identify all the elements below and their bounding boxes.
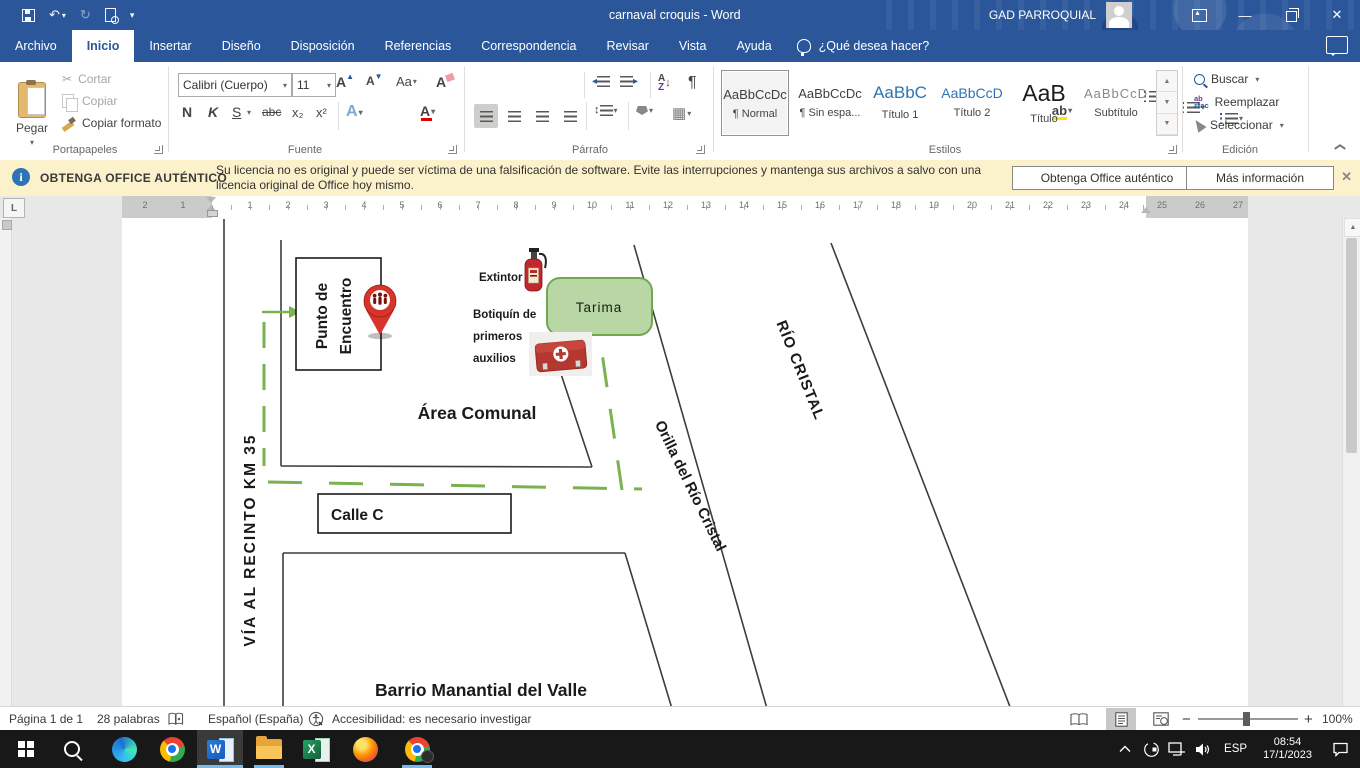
status-bar: Página 1 de 1 28 palabras Español (Españ…: [0, 706, 1360, 731]
style-titulo[interactable]: AaB Título: [1011, 70, 1077, 134]
left-indent-marker[interactable]: [207, 210, 218, 217]
app-badge-icon: [421, 750, 434, 763]
ribbon-display-options-icon[interactable]: [1176, 0, 1222, 30]
rio-cristal-label[interactable]: RÍO CRISTAL: [772, 318, 827, 422]
tab-correspondencia[interactable]: Correspondencia: [466, 30, 591, 62]
excel-icon: X: [303, 737, 330, 762]
cursor-arrow-icon: [1191, 117, 1206, 133]
shading-button[interactable]: ▾: [636, 106, 653, 115]
tab-vista[interactable]: Vista: [664, 30, 722, 62]
zoom-percentage[interactable]: 100%: [1322, 707, 1353, 731]
ruler-number: 6: [437, 200, 442, 210]
cut-button[interactable]: ✂ Cortar: [62, 72, 111, 86]
clock[interactable]: 08:54 17/1/2023: [1255, 736, 1320, 762]
underline-dropdown[interactable]: ▾: [246, 108, 251, 117]
comments-icon[interactable]: [1326, 36, 1348, 54]
tab-diseno[interactable]: Diseño: [207, 30, 276, 62]
close-icon[interactable]: ✕: [1314, 0, 1360, 30]
zoom-slider[interactable]: [1198, 718, 1298, 720]
grow-font-button[interactable]: A▲: [336, 74, 354, 90]
more-info-button[interactable]: Más información: [1186, 166, 1334, 190]
ribbon-home: Pegar ▾ ✂ Cortar Copiar Copiar formato P…: [0, 62, 1360, 161]
zoom-slider-thumb[interactable]: [1243, 712, 1250, 726]
strikethrough-button[interactable]: abc: [262, 105, 281, 119]
styles-scroll-down-icon[interactable]: ▼: [1157, 92, 1177, 113]
word-count[interactable]: 28 palabras: [97, 707, 160, 731]
search-icon: [64, 741, 80, 757]
read-mode-icon[interactable]: [1064, 708, 1094, 730]
web-layout-icon[interactable]: [1146, 708, 1176, 730]
ruler-number: 11: [625, 200, 634, 210]
taskbar-chrome2-button[interactable]: [394, 730, 440, 768]
replace-icon: ab⇄ac: [1194, 95, 1209, 109]
redo-icon[interactable]: ↻: [80, 7, 91, 23]
taskbar-excel-button[interactable]: X: [293, 730, 339, 768]
network-icon[interactable]: [1164, 730, 1190, 768]
account-name: GAD PARROQUIAL: [989, 8, 1096, 22]
taskbar-edge-button[interactable]: [101, 730, 147, 768]
license-banner: i OBTENGA OFFICE AUTÉNTICO Su licencia n…: [0, 160, 1360, 197]
ruler-number: 7: [475, 200, 480, 210]
decrease-indent-button[interactable]: ◂: [592, 76, 610, 87]
replace-button[interactable]: ab⇄ac Reemplazar: [1194, 95, 1279, 109]
zoom-out-button[interactable]: −: [1182, 707, 1191, 731]
sort-button[interactable]: AZ↓: [658, 74, 671, 92]
scroll-up-icon[interactable]: ▲: [1344, 218, 1360, 237]
accessibility-status[interactable]: Accesibilidad: es necesario investigar: [332, 707, 531, 731]
word-window: ↶▾ ↻ ▾ carnaval croquis - Word GAD PARRO…: [0, 0, 1360, 768]
font-family-combobox[interactable]: Calibri (Cuerpo)▾: [178, 73, 292, 97]
banner-message: Su licencia no es original y puede ser v…: [216, 163, 981, 193]
eraser-icon: [445, 73, 455, 82]
font-color-button[interactable]: A ▾: [420, 103, 435, 119]
scrollbar-thumb[interactable]: [1346, 238, 1357, 453]
ruler-number: 9: [551, 200, 556, 210]
tell-me-label: ¿Qué desea hacer?: [819, 39, 930, 53]
calle-c-label[interactable]: Calle C: [331, 507, 384, 524]
first-line-indent-marker[interactable]: [206, 197, 216, 203]
select-button[interactable]: Seleccionar▾: [1194, 118, 1284, 132]
ruler-number: 1: [180, 200, 185, 210]
ruler-number: 3: [323, 200, 328, 210]
align-right-button[interactable]: [530, 104, 554, 128]
line-spacing-button[interactable]: ↕▾: [594, 104, 618, 116]
proofing-icon[interactable]: [168, 707, 184, 731]
ruler-number: 8: [513, 200, 518, 210]
tarima-label[interactable]: Tarima: [576, 300, 623, 315]
tab-inicio[interactable]: Inicio: [72, 30, 135, 62]
account-area[interactable]: GAD PARROQUIAL: [989, 0, 1132, 30]
document-canvas: Punto de Encuentro: [0, 218, 1360, 706]
orilla-road-left-line: [634, 245, 768, 706]
ruler-number: 2: [142, 200, 147, 210]
ruler-number: 27: [1233, 200, 1243, 210]
ruler-number: 24: [1119, 200, 1129, 210]
increase-indent-button[interactable]: ▸: [620, 76, 638, 87]
taskbar-firefox-button[interactable]: [342, 730, 388, 768]
tab-archivo[interactable]: Archivo: [0, 30, 72, 62]
find-button[interactable]: Buscar▾: [1194, 72, 1259, 86]
change-case-button[interactable]: Aa▾: [396, 74, 417, 89]
print-preview-icon[interactable]: [105, 8, 116, 22]
word-icon: W: [207, 737, 234, 762]
ribbon-tabs: Archivo Inicio Insertar Diseño Disposici…: [0, 30, 1360, 62]
ruler: L 21123456789101112131415161718192021222…: [0, 196, 1360, 218]
botiquin-label-line2[interactable]: primeros: [473, 331, 522, 343]
fire-extinguisher-icon[interactable]: [525, 248, 546, 291]
styles-gallery-more-icon[interactable]: ▼: [1157, 114, 1177, 135]
language-status[interactable]: Español (España): [208, 707, 303, 731]
via-recinto-label[interactable]: VÍA AL RECINTO KM 35: [242, 433, 259, 646]
info-icon: i: [12, 168, 30, 186]
ruler-number: 5: [399, 200, 404, 210]
hidden-icons-chevron-icon[interactable]: [1112, 730, 1138, 768]
ruler-number: 17: [853, 200, 863, 210]
font-dialog-launcher-icon[interactable]: [448, 145, 457, 154]
search-icon: [1194, 74, 1205, 85]
ruler-number: 19: [929, 200, 939, 210]
tell-me-box[interactable]: ¿Qué desea hacer?: [787, 30, 940, 62]
format-painter-button[interactable]: Copiar formato: [62, 116, 161, 130]
tab-insertar[interactable]: Insertar: [134, 30, 206, 62]
tab-ayuda[interactable]: Ayuda: [721, 30, 786, 62]
quick-access-toolbar: ↶▾ ↻ ▾: [22, 0, 134, 30]
print-layout-icon[interactable]: [1106, 708, 1136, 730]
styles-gallery-scroll: ▲ ▼ ▼: [1156, 70, 1178, 136]
ruler-number: 26: [1195, 200, 1205, 210]
ruler-number: 20: [967, 200, 977, 210]
lightbulb-icon: [797, 39, 811, 53]
meet-now-icon[interactable]: [1138, 730, 1164, 768]
vertical-ruler: [0, 218, 12, 706]
avatar[interactable]: [1106, 2, 1132, 28]
minimize-icon[interactable]: —: [1222, 0, 1268, 30]
paste-icon: [18, 82, 46, 118]
font-color-swatch: [421, 118, 432, 121]
justify-button[interactable]: [558, 104, 582, 128]
area-comunal-label[interactable]: Área Comunal: [418, 402, 537, 423]
scissors-icon: ✂: [62, 72, 72, 86]
tab-selector[interactable]: L: [3, 198, 25, 218]
taskbar-chrome-button[interactable]: [149, 730, 195, 768]
ruler-number: 21: [1005, 200, 1015, 210]
restore-icon[interactable]: [1268, 0, 1314, 30]
keyboard-language[interactable]: ESP: [1216, 743, 1255, 755]
zoom-in-button[interactable]: +: [1304, 707, 1313, 731]
paragraph-group-label: Párrafo: [535, 144, 645, 156]
styles-group-label: Estilos: [890, 144, 1000, 156]
edge-icon: [112, 737, 137, 762]
action-center-icon[interactable]: [1320, 730, 1360, 768]
ruler-number: 4: [361, 200, 366, 210]
style-titulo-1[interactable]: AaBbC Título 1: [867, 70, 933, 134]
extintor-label[interactable]: Extintor: [479, 272, 523, 284]
customize-qat-icon[interactable]: ▾: [130, 10, 135, 21]
styles-scroll-up-icon[interactable]: ▲: [1157, 71, 1177, 92]
taskbar: W X ESP: [0, 730, 1360, 768]
window-title: carnaval croquis - Word: [609, 0, 741, 30]
ruler-track: 2112345678910111213141516171819202122232…: [122, 196, 1248, 218]
accessibility-icon[interactable]: [308, 707, 324, 731]
clipboard-group-label: Portapapeles: [30, 144, 140, 156]
show-marks-button[interactable]: ¶: [688, 74, 697, 92]
align-center-button[interactable]: [502, 104, 526, 128]
first-aid-kit-icon[interactable]: [529, 332, 592, 376]
banner-title: OBTENGA OFFICE AUTÉNTICO: [40, 171, 227, 185]
subscript-button[interactable]: x₂: [292, 105, 304, 120]
barrio-right-edge: [625, 553, 673, 706]
punto-label-line1[interactable]: Punto de: [314, 282, 331, 349]
tab-referencias[interactable]: Referencias: [370, 30, 467, 62]
superscript-button[interactable]: x²: [316, 105, 327, 120]
taskbar-search-button[interactable]: [49, 730, 95, 768]
tab-revisar[interactable]: Revisar: [591, 30, 663, 62]
undo-icon[interactable]: ↶▾: [49, 7, 66, 23]
ruler-number: 16: [815, 200, 825, 210]
style-normal[interactable]: AaBbCcDc ¶ Normal: [721, 70, 789, 136]
tray-date: 17/1/2023: [1263, 749, 1312, 762]
ruler-number: 23: [1081, 200, 1091, 210]
ruler-number: 25: [1157, 200, 1167, 210]
paragraph-dialog-launcher-icon[interactable]: [696, 145, 705, 154]
copy-icon: [62, 94, 74, 108]
croquis-drawing: Punto de Encuentro: [0, 218, 1360, 706]
italic-button[interactable]: K: [208, 104, 218, 120]
ruler-number: 22: [1043, 200, 1053, 210]
styles-dialog-launcher-icon[interactable]: [1168, 145, 1177, 154]
paste-label: Pegar: [16, 121, 48, 135]
get-office-button[interactable]: Obtenga Office auténtico: [1012, 166, 1202, 190]
save-icon[interactable]: [22, 9, 35, 22]
right-indent-marker[interactable]: [1141, 207, 1151, 213]
ruler-number: 12: [663, 200, 673, 210]
vertical-scrollbar[interactable]: ▲: [1342, 218, 1360, 706]
page-count[interactable]: Página 1 de 1: [9, 707, 83, 731]
taskbar-word-button[interactable]: W: [197, 730, 243, 768]
shrink-font-button[interactable]: A▼: [366, 74, 383, 88]
titlebar: ↶▾ ↻ ▾ carnaval croquis - Word GAD PARRO…: [0, 0, 1360, 30]
borders-button[interactable]: ▦▾: [672, 104, 691, 122]
tray-time: 08:54: [1263, 736, 1312, 749]
align-left-button[interactable]: [474, 104, 498, 128]
ruler-number: 14: [739, 200, 749, 210]
firefox-icon: [353, 737, 378, 762]
collapse-ribbon-icon[interactable]: [1334, 144, 1346, 152]
taskbar-explorer-button[interactable]: [246, 730, 292, 768]
window-controls: — ✕: [1176, 0, 1360, 30]
style-subtitulo[interactable]: AaBbCcD Subtítulo: [1083, 70, 1149, 134]
format-painter-icon: [62, 117, 75, 130]
ruler-number: 13: [701, 200, 711, 210]
ruler-number: 15: [777, 200, 787, 210]
style-titulo-2[interactable]: AaBbCcD Título 2: [939, 70, 1005, 134]
windows-logo-icon: [18, 741, 34, 757]
borders-grid-icon: ▦: [672, 104, 686, 122]
ruler-number: 18: [891, 200, 901, 210]
editing-group-label: Edición: [1185, 144, 1295, 156]
ruler-number: 2: [285, 200, 290, 210]
botiquin-label-line1[interactable]: Botiquín de: [473, 309, 536, 321]
punto-label-line2[interactable]: Encuentro: [338, 278, 355, 355]
file-explorer-icon: [256, 739, 282, 759]
ruler-number: 10: [587, 200, 597, 210]
style-sin-espaciado[interactable]: AaBbCcDc ¶ Sin espa...: [797, 70, 863, 134]
tab-disposicion[interactable]: Disposición: [276, 30, 370, 62]
font-group-label: Fuente: [250, 144, 360, 156]
banner-close-icon[interactable]: ✕: [1341, 169, 1352, 185]
start-button[interactable]: [3, 730, 49, 768]
clipboard-dialog-launcher-icon[interactable]: [154, 145, 163, 154]
volume-icon[interactable]: [1190, 730, 1216, 768]
font-size-combobox[interactable]: 11▾: [292, 73, 336, 97]
shading-bucket-icon: [636, 106, 648, 115]
text-effects-button[interactable]: A▾: [346, 103, 363, 121]
system-tray: ESP 08:54 17/1/2023: [1112, 730, 1360, 768]
area-comunal-bottom-edge: [281, 466, 592, 467]
copy-button[interactable]: Copiar: [62, 94, 117, 108]
bold-button[interactable]: N: [182, 104, 192, 120]
clear-formatting-button[interactable]: A: [436, 74, 446, 90]
underline-button[interactable]: S: [232, 104, 241, 120]
barrio-label[interactable]: Barrio Manantial del Valle: [375, 680, 587, 700]
botiquin-label-line3[interactable]: auxilios: [473, 353, 516, 365]
rio-cristal-line: [831, 243, 1012, 706]
ruler-number: 1: [247, 200, 252, 210]
chrome-icon: [160, 737, 185, 762]
